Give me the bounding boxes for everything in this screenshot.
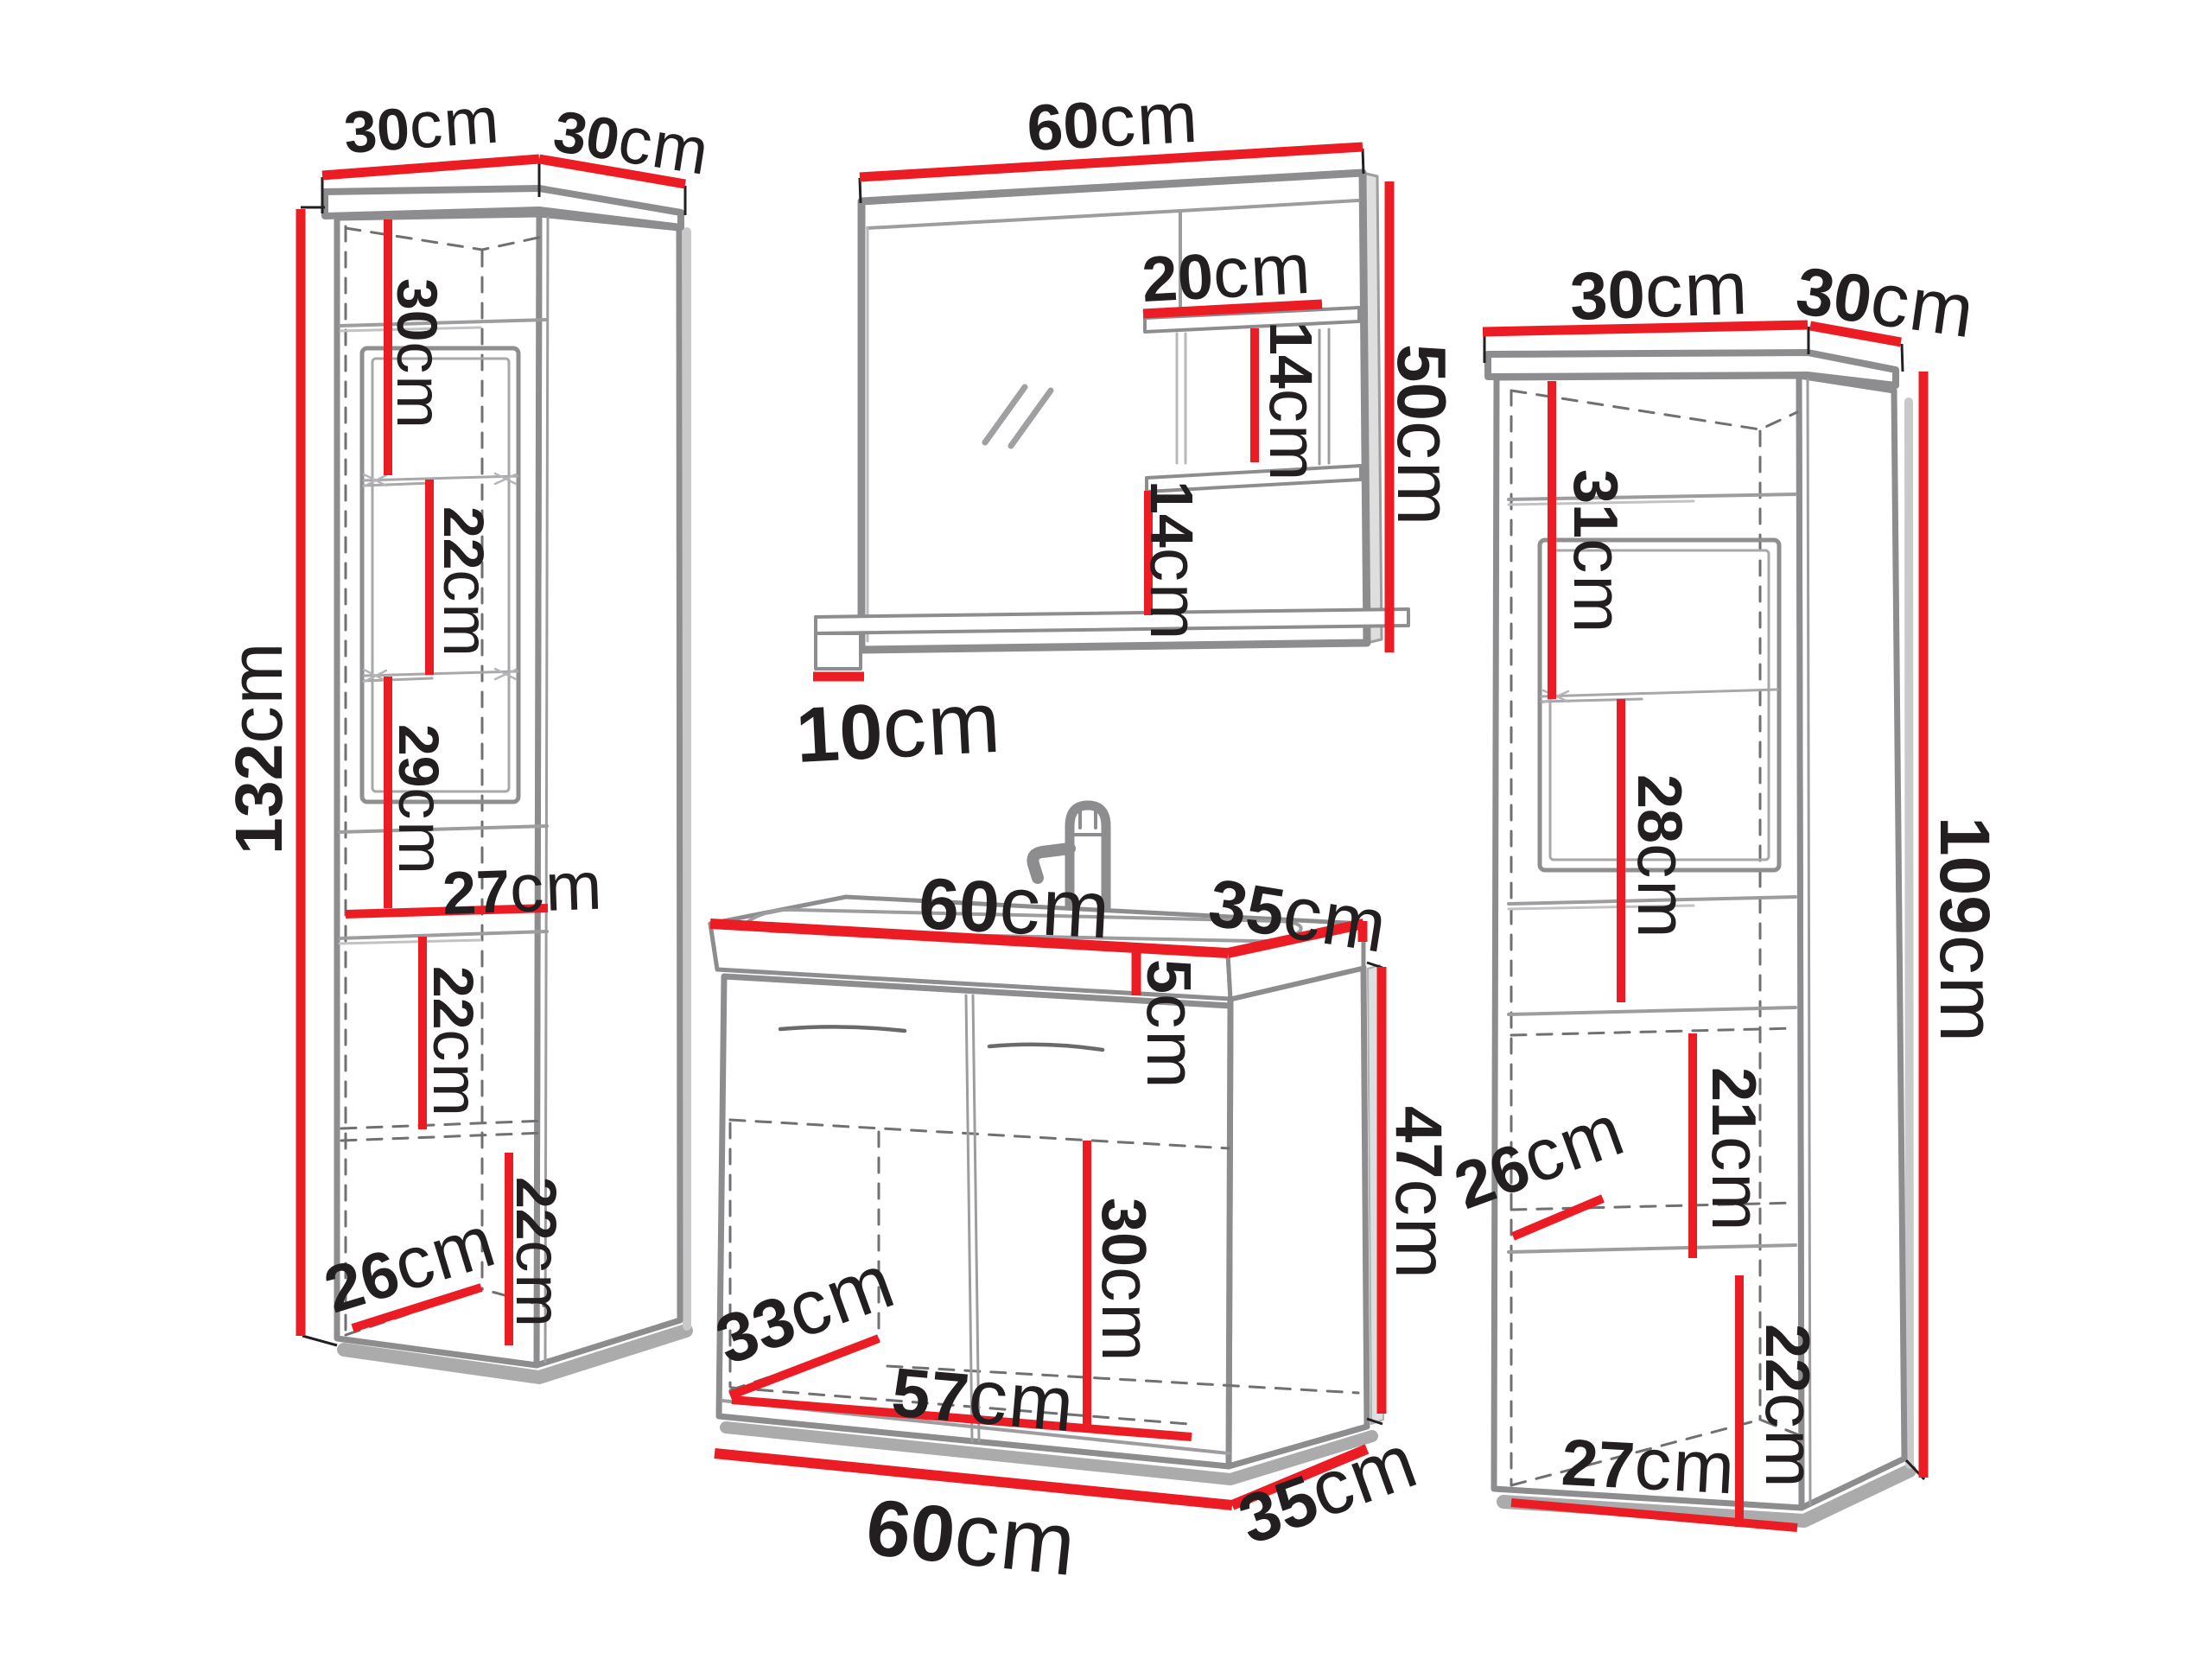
svg-text:30cm: 30cm <box>1791 245 1980 354</box>
svg-text:57cm: 57cm <box>888 1345 1078 1447</box>
svg-text:22cm: 22cm <box>430 506 502 658</box>
svg-text:30cm: 30cm <box>341 84 503 168</box>
svg-text:22cm: 22cm <box>420 966 492 1118</box>
svg-text:14cm: 14cm <box>1255 321 1332 482</box>
svg-text:10cm: 10cm <box>793 674 1004 781</box>
svg-text:132cm: 132cm <box>215 641 298 855</box>
svg-text:22cm: 22cm <box>503 1177 575 1329</box>
svg-text:22cm: 22cm <box>1751 1324 1828 1490</box>
svg-text:5cm: 5cm <box>1132 959 1210 1090</box>
svg-text:50cm: 50cm <box>1382 344 1468 527</box>
svg-text:60cm: 60cm <box>917 855 1114 956</box>
svg-text:60cm: 60cm <box>862 1474 1082 1595</box>
svg-text:29cm: 29cm <box>385 724 457 876</box>
svg-text:109cm: 109cm <box>1923 817 2012 1044</box>
svg-text:30cm: 30cm <box>549 92 715 189</box>
svg-text:27cm: 27cm <box>1560 1419 1738 1510</box>
svg-text:60cm: 60cm <box>1025 76 1201 166</box>
svg-text:27cm: 27cm <box>442 848 605 929</box>
svg-text:28cm: 28cm <box>1623 774 1700 940</box>
svg-text:47cm: 47cm <box>1380 1106 1462 1281</box>
svg-text:30cm: 30cm <box>1087 1198 1165 1363</box>
svg-text:21cm: 21cm <box>1697 1067 1775 1233</box>
svg-text:30cm: 30cm <box>1568 245 1751 336</box>
svg-text:14cm: 14cm <box>1136 480 1212 641</box>
svg-text:31cm: 31cm <box>1559 469 1637 635</box>
svg-text:30cm: 30cm <box>384 278 455 430</box>
